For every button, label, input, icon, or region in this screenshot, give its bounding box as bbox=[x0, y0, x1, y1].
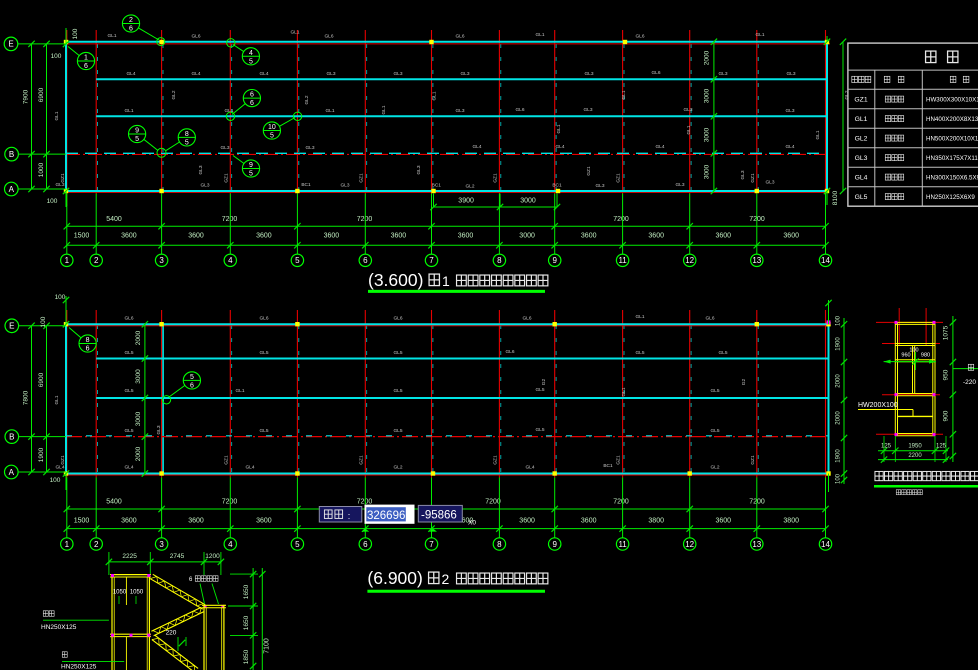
svg-text:A: A bbox=[9, 468, 15, 477]
svg-text:GL4: GL4 bbox=[191, 71, 200, 77]
svg-text:1500: 1500 bbox=[74, 518, 90, 525]
svg-text:GL3: GL3 bbox=[200, 183, 209, 189]
svg-text:GL3: GL3 bbox=[326, 71, 335, 77]
svg-text:5: 5 bbox=[249, 58, 253, 65]
svg-text:5: 5 bbox=[185, 139, 189, 146]
svg-text:3: 3 bbox=[159, 540, 164, 549]
svg-text:3600: 3600 bbox=[256, 518, 272, 525]
svg-text:GL6: GL6 bbox=[515, 107, 524, 113]
svg-text:GZ1: GZ1 bbox=[60, 455, 66, 465]
svg-text:GL1: GL1 bbox=[815, 130, 821, 139]
svg-text:2000: 2000 bbox=[704, 50, 711, 65]
svg-text:GL3: GL3 bbox=[595, 183, 604, 189]
svg-text:3600: 3600 bbox=[783, 233, 799, 240]
svg-text:GL1: GL1 bbox=[432, 91, 438, 100]
svg-text:100: 100 bbox=[836, 473, 842, 484]
svg-text:B: B bbox=[9, 150, 14, 159]
svg-text:GL3: GL3 bbox=[718, 71, 727, 77]
svg-text:GL4: GL4 bbox=[472, 144, 481, 150]
svg-text:2: 2 bbox=[94, 540, 99, 549]
svg-text:3600: 3600 bbox=[256, 233, 272, 240]
svg-text:GL1: GL1 bbox=[325, 108, 334, 114]
svg-text:GL1: GL1 bbox=[855, 116, 868, 123]
svg-text:8: 8 bbox=[497, 540, 502, 549]
svg-text:10: 10 bbox=[268, 124, 276, 131]
svg-text:3000: 3000 bbox=[135, 369, 142, 384]
svg-text:3600: 3600 bbox=[121, 233, 137, 240]
svg-text:GL1: GL1 bbox=[235, 388, 244, 394]
svg-text:1050: 1050 bbox=[113, 590, 127, 596]
svg-text:GL5: GL5 bbox=[393, 428, 402, 434]
svg-text:GL4: GL4 bbox=[655, 144, 664, 150]
svg-text:GZ1: GZ1 bbox=[616, 173, 622, 183]
svg-text:GL5: GL5 bbox=[259, 428, 268, 434]
svg-text:GL2: GL2 bbox=[304, 95, 310, 104]
svg-text:GL6: GL6 bbox=[259, 316, 268, 322]
svg-text:5: 5 bbox=[249, 171, 253, 178]
svg-text:6: 6 bbox=[250, 92, 254, 99]
svg-text:HN250X125X6X9: HN250X125X6X9 bbox=[926, 194, 975, 201]
svg-text:100: 100 bbox=[51, 53, 62, 60]
svg-text:326696: 326696 bbox=[367, 510, 405, 522]
svg-text:BC1: BC1 bbox=[552, 183, 562, 189]
svg-text:13: 13 bbox=[752, 540, 761, 549]
svg-text:7900: 7900 bbox=[23, 89, 30, 104]
svg-text:GL1: GL1 bbox=[54, 395, 60, 404]
svg-text:GZ1: GZ1 bbox=[750, 173, 756, 183]
svg-text:GL3: GL3 bbox=[305, 145, 314, 151]
svg-text:3600: 3600 bbox=[188, 518, 204, 525]
svg-text:2000: 2000 bbox=[836, 411, 842, 425]
svg-text:1900: 1900 bbox=[38, 447, 45, 462]
svg-text:3000: 3000 bbox=[704, 164, 711, 179]
svg-text:6: 6 bbox=[190, 382, 194, 389]
svg-text:GL6: GL6 bbox=[505, 349, 514, 355]
svg-text:GL3: GL3 bbox=[855, 155, 868, 162]
svg-text:GL1: GL1 bbox=[107, 33, 116, 39]
svg-text:5: 5 bbox=[190, 374, 194, 381]
svg-text:GL4: GL4 bbox=[525, 465, 534, 471]
svg-text:9: 9 bbox=[135, 128, 139, 135]
svg-text:GL4: GL4 bbox=[124, 465, 133, 471]
svg-text:GL2: GL2 bbox=[465, 184, 474, 190]
svg-text:GL1: GL1 bbox=[635, 314, 644, 320]
svg-text:2225: 2225 bbox=[122, 553, 137, 560]
svg-text:GL6: GL6 bbox=[124, 316, 133, 322]
svg-text:GL6: GL6 bbox=[705, 316, 714, 322]
svg-text:GL1: GL1 bbox=[381, 105, 387, 114]
svg-text:GL1: GL1 bbox=[224, 108, 233, 114]
svg-text:980: 980 bbox=[921, 353, 930, 359]
svg-text:6: 6 bbox=[84, 63, 88, 70]
svg-text:GL2: GL2 bbox=[844, 90, 850, 99]
svg-text:1050: 1050 bbox=[130, 590, 144, 596]
svg-text:5: 5 bbox=[295, 540, 300, 549]
svg-text:960: 960 bbox=[901, 353, 910, 359]
svg-text:5: 5 bbox=[135, 136, 139, 143]
svg-text:GL3: GL3 bbox=[740, 170, 746, 179]
svg-text:GL4: GL4 bbox=[245, 465, 254, 471]
svg-text:1900: 1900 bbox=[836, 337, 842, 351]
svg-text:8: 8 bbox=[185, 131, 189, 138]
svg-text:3600: 3600 bbox=[581, 233, 597, 240]
svg-text:E: E bbox=[9, 322, 14, 331]
svg-text:GZ1: GZ1 bbox=[586, 166, 592, 176]
svg-text:7200: 7200 bbox=[222, 498, 238, 505]
svg-text:GL3: GL3 bbox=[416, 165, 422, 174]
svg-text:1: 1 bbox=[65, 540, 70, 549]
svg-text:GL3: GL3 bbox=[156, 425, 162, 434]
svg-text:GL5: GL5 bbox=[535, 387, 544, 393]
svg-text:7200: 7200 bbox=[222, 216, 238, 223]
svg-text:3600: 3600 bbox=[188, 233, 204, 240]
svg-text:100: 100 bbox=[909, 348, 918, 354]
svg-text:11: 11 bbox=[618, 540, 627, 549]
svg-text:6: 6 bbox=[250, 100, 254, 107]
svg-text:GZ1: GZ1 bbox=[616, 455, 622, 465]
svg-text:GL1: GL1 bbox=[124, 108, 133, 114]
svg-text:GL3: GL3 bbox=[460, 71, 469, 77]
svg-text:GL5: GL5 bbox=[124, 428, 133, 434]
svg-text:GL4: GL4 bbox=[785, 144, 794, 150]
svg-text:GL1: GL1 bbox=[621, 387, 627, 396]
svg-text:1650: 1650 bbox=[243, 584, 250, 599]
svg-text:BC1: BC1 bbox=[432, 183, 442, 189]
svg-text:1000: 1000 bbox=[38, 162, 45, 177]
svg-text:GL3: GL3 bbox=[455, 108, 464, 114]
svg-text:GL6: GL6 bbox=[522, 316, 531, 322]
svg-text:GL6: GL6 bbox=[393, 316, 402, 322]
svg-text:5: 5 bbox=[295, 256, 300, 265]
svg-text:HN500X200X10X16: HN500X200X10X16 bbox=[926, 135, 978, 142]
svg-text:GL4: GL4 bbox=[126, 71, 135, 77]
svg-text:GL3: GL3 bbox=[584, 71, 593, 77]
svg-text:6: 6 bbox=[363, 256, 368, 265]
svg-text:6900: 6900 bbox=[38, 87, 45, 102]
svg-text:(3.600): (3.600) bbox=[368, 270, 423, 290]
svg-text:HN250X125: HN250X125 bbox=[61, 664, 97, 670]
svg-text:G2: G2 bbox=[741, 378, 747, 385]
svg-text:GL5: GL5 bbox=[393, 388, 402, 394]
svg-text:8100: 8100 bbox=[832, 190, 839, 205]
svg-text:HW300X300X10X15: HW300X300X10X15 bbox=[926, 96, 978, 103]
svg-text:GL1: GL1 bbox=[290, 30, 299, 36]
svg-text:1650: 1650 bbox=[243, 615, 250, 630]
svg-text:100: 100 bbox=[836, 315, 842, 326]
svg-text:GL4: GL4 bbox=[855, 174, 868, 181]
svg-text:GZ1: GZ1 bbox=[223, 173, 229, 183]
svg-text:14: 14 bbox=[821, 540, 830, 549]
svg-text:7200: 7200 bbox=[357, 498, 373, 505]
svg-text:GL1: GL1 bbox=[556, 124, 562, 133]
svg-text:100: 100 bbox=[40, 316, 47, 327]
svg-text:3: 3 bbox=[159, 256, 164, 265]
svg-text:BC1: BC1 bbox=[301, 182, 311, 188]
svg-text:GL1: GL1 bbox=[686, 125, 692, 134]
svg-text:GL3: GL3 bbox=[340, 183, 349, 189]
svg-text:GL2: GL2 bbox=[855, 135, 868, 142]
svg-text:7800: 7800 bbox=[23, 390, 30, 405]
svg-text:GL5: GL5 bbox=[259, 350, 268, 356]
svg-text:GL6: GL6 bbox=[651, 70, 660, 76]
svg-text:3600: 3600 bbox=[716, 518, 732, 525]
svg-text:2745: 2745 bbox=[170, 553, 185, 560]
svg-text:GL5: GL5 bbox=[393, 350, 402, 356]
svg-text:7200: 7200 bbox=[613, 498, 629, 505]
svg-text:2200: 2200 bbox=[908, 453, 922, 459]
svg-text:6: 6 bbox=[86, 346, 90, 353]
svg-text:1: 1 bbox=[442, 273, 450, 289]
svg-text:GL5: GL5 bbox=[635, 350, 644, 356]
svg-text:7200: 7200 bbox=[613, 216, 629, 223]
svg-text:7: 7 bbox=[429, 256, 434, 265]
svg-text:GL3: GL3 bbox=[785, 108, 794, 114]
svg-text:GL6: GL6 bbox=[191, 34, 200, 40]
svg-text:3600: 3600 bbox=[458, 233, 474, 240]
svg-text:3000: 3000 bbox=[704, 88, 711, 103]
svg-text:2000: 2000 bbox=[135, 330, 142, 345]
svg-text:3600: 3600 bbox=[391, 233, 407, 240]
svg-text:GZ1: GZ1 bbox=[60, 173, 66, 183]
svg-text:2000: 2000 bbox=[836, 374, 842, 388]
svg-text:1500: 1500 bbox=[74, 233, 90, 240]
svg-text:G2: G2 bbox=[541, 378, 547, 385]
svg-text:100: 100 bbox=[47, 198, 58, 205]
svg-text:GZ1: GZ1 bbox=[492, 455, 498, 465]
svg-text:GZ1: GZ1 bbox=[223, 455, 229, 465]
svg-text:3800: 3800 bbox=[783, 518, 799, 525]
svg-text:1900: 1900 bbox=[836, 449, 842, 463]
svg-text:7200: 7200 bbox=[485, 498, 501, 505]
svg-text:BC1: BC1 bbox=[603, 463, 613, 469]
svg-text:3800: 3800 bbox=[648, 518, 664, 525]
svg-text:12: 12 bbox=[685, 256, 694, 265]
svg-text:4: 4 bbox=[228, 540, 233, 549]
svg-text:HN400X200X8X13: HN400X200X8X13 bbox=[926, 116, 978, 123]
svg-text:GL3: GL3 bbox=[198, 165, 204, 174]
svg-text:9: 9 bbox=[552, 540, 557, 549]
svg-text:900: 900 bbox=[942, 410, 949, 421]
svg-text:GL5: GL5 bbox=[124, 350, 133, 356]
svg-text:GL5: GL5 bbox=[710, 428, 719, 434]
svg-text:2: 2 bbox=[94, 256, 99, 265]
svg-text:GL4: GL4 bbox=[555, 144, 564, 150]
svg-text:GL4: GL4 bbox=[259, 71, 268, 77]
svg-text:A: A bbox=[9, 185, 15, 194]
svg-text:1200: 1200 bbox=[205, 553, 220, 560]
svg-text:3600: 3600 bbox=[716, 233, 732, 240]
svg-text:-220: -220 bbox=[963, 379, 976, 386]
svg-text:7: 7 bbox=[429, 540, 434, 549]
svg-text:7200: 7200 bbox=[357, 216, 373, 223]
svg-text:B: B bbox=[9, 432, 14, 441]
svg-text:3600: 3600 bbox=[121, 518, 137, 525]
svg-text:HN350X175X7X11: HN350X175X7X11 bbox=[926, 155, 978, 162]
svg-text:3600: 3600 bbox=[324, 233, 340, 240]
svg-text:GL6: GL6 bbox=[635, 34, 644, 40]
svg-text:1850: 1850 bbox=[243, 649, 250, 664]
svg-text:2: 2 bbox=[442, 571, 450, 587]
svg-text:GL3: GL3 bbox=[583, 107, 592, 113]
svg-text:6: 6 bbox=[363, 540, 368, 549]
svg-text:5400: 5400 bbox=[106, 216, 122, 223]
svg-text:3600: 3600 bbox=[519, 518, 535, 525]
svg-text:HN250X125: HN250X125 bbox=[41, 624, 77, 631]
svg-text:11: 11 bbox=[618, 256, 627, 265]
svg-text:GL3: GL3 bbox=[220, 145, 229, 151]
svg-text:2: 2 bbox=[129, 17, 133, 24]
svg-text:9: 9 bbox=[249, 162, 253, 169]
svg-text:8: 8 bbox=[497, 256, 502, 265]
svg-text:100: 100 bbox=[50, 477, 61, 484]
svg-text:GL5: GL5 bbox=[535, 427, 544, 433]
svg-text:GZ1: GZ1 bbox=[358, 455, 364, 465]
svg-text:GL3: GL3 bbox=[683, 107, 692, 113]
svg-text:X0: X0 bbox=[468, 520, 476, 527]
svg-text:GL2: GL2 bbox=[710, 465, 719, 471]
svg-text:1950: 1950 bbox=[908, 444, 922, 450]
svg-text:4: 4 bbox=[228, 256, 233, 265]
svg-text:1: 1 bbox=[84, 55, 88, 62]
svg-text:E: E bbox=[8, 40, 13, 49]
svg-text:5: 5 bbox=[270, 133, 274, 140]
svg-text:GL6: GL6 bbox=[455, 34, 464, 40]
svg-text:GL1: GL1 bbox=[535, 32, 544, 38]
svg-text:220: 220 bbox=[166, 630, 177, 637]
svg-text:GZ1: GZ1 bbox=[492, 173, 498, 183]
svg-text:GL3: GL3 bbox=[765, 180, 774, 186]
svg-text:HW200X100: HW200X100 bbox=[858, 402, 898, 409]
svg-text:6900: 6900 bbox=[38, 372, 45, 387]
svg-text:GZ1: GZ1 bbox=[750, 455, 756, 465]
svg-text:GL3: GL3 bbox=[675, 182, 684, 188]
svg-text:7100: 7100 bbox=[264, 638, 271, 654]
svg-text:3000: 3000 bbox=[135, 411, 142, 426]
svg-text:GL5: GL5 bbox=[855, 194, 868, 201]
svg-text:GL3: GL3 bbox=[393, 71, 402, 77]
svg-text:3600: 3600 bbox=[581, 518, 597, 525]
svg-text:6: 6 bbox=[129, 26, 133, 33]
svg-text:5400: 5400 bbox=[106, 498, 122, 505]
svg-text::: : bbox=[348, 511, 351, 521]
svg-text:950: 950 bbox=[942, 369, 949, 380]
svg-text:GL1: GL1 bbox=[621, 90, 627, 99]
svg-text:3000: 3000 bbox=[520, 197, 536, 204]
svg-text:125: 125 bbox=[936, 444, 947, 450]
svg-text:3000: 3000 bbox=[519, 233, 535, 240]
svg-text:GL5: GL5 bbox=[124, 388, 133, 394]
svg-text:GL2: GL2 bbox=[171, 90, 177, 99]
svg-text:3000: 3000 bbox=[704, 127, 711, 142]
svg-text:4: 4 bbox=[249, 50, 253, 57]
svg-text:125: 125 bbox=[881, 444, 892, 450]
svg-text:100: 100 bbox=[72, 28, 79, 39]
svg-text:GL1: GL1 bbox=[54, 111, 60, 120]
svg-text:(6.900): (6.900) bbox=[367, 568, 422, 588]
svg-text:GL5: GL5 bbox=[710, 388, 719, 394]
svg-text:100: 100 bbox=[55, 294, 66, 301]
svg-text:3600: 3600 bbox=[648, 233, 664, 240]
svg-text:1075: 1075 bbox=[942, 325, 949, 340]
svg-text:GZ1: GZ1 bbox=[358, 173, 364, 183]
svg-text:GL6: GL6 bbox=[324, 34, 333, 40]
svg-text:9: 9 bbox=[552, 256, 557, 265]
svg-text:GL3: GL3 bbox=[786, 71, 795, 77]
svg-text:1: 1 bbox=[65, 256, 70, 265]
svg-text:-95866: -95866 bbox=[421, 510, 457, 522]
svg-text:2000: 2000 bbox=[135, 446, 142, 461]
svg-text:GL2: GL2 bbox=[393, 465, 402, 471]
svg-text:GL5: GL5 bbox=[718, 350, 727, 356]
svg-text:13: 13 bbox=[752, 256, 761, 265]
svg-text:GL1: GL1 bbox=[755, 32, 764, 38]
svg-text:GZ1: GZ1 bbox=[854, 96, 867, 103]
svg-text:8: 8 bbox=[86, 337, 90, 344]
svg-text:HN300X150X6.5X9: HN300X150X6.5X9 bbox=[926, 174, 978, 181]
svg-text:3900: 3900 bbox=[458, 197, 474, 204]
svg-text:14: 14 bbox=[821, 256, 830, 265]
svg-text:12: 12 bbox=[685, 540, 694, 549]
